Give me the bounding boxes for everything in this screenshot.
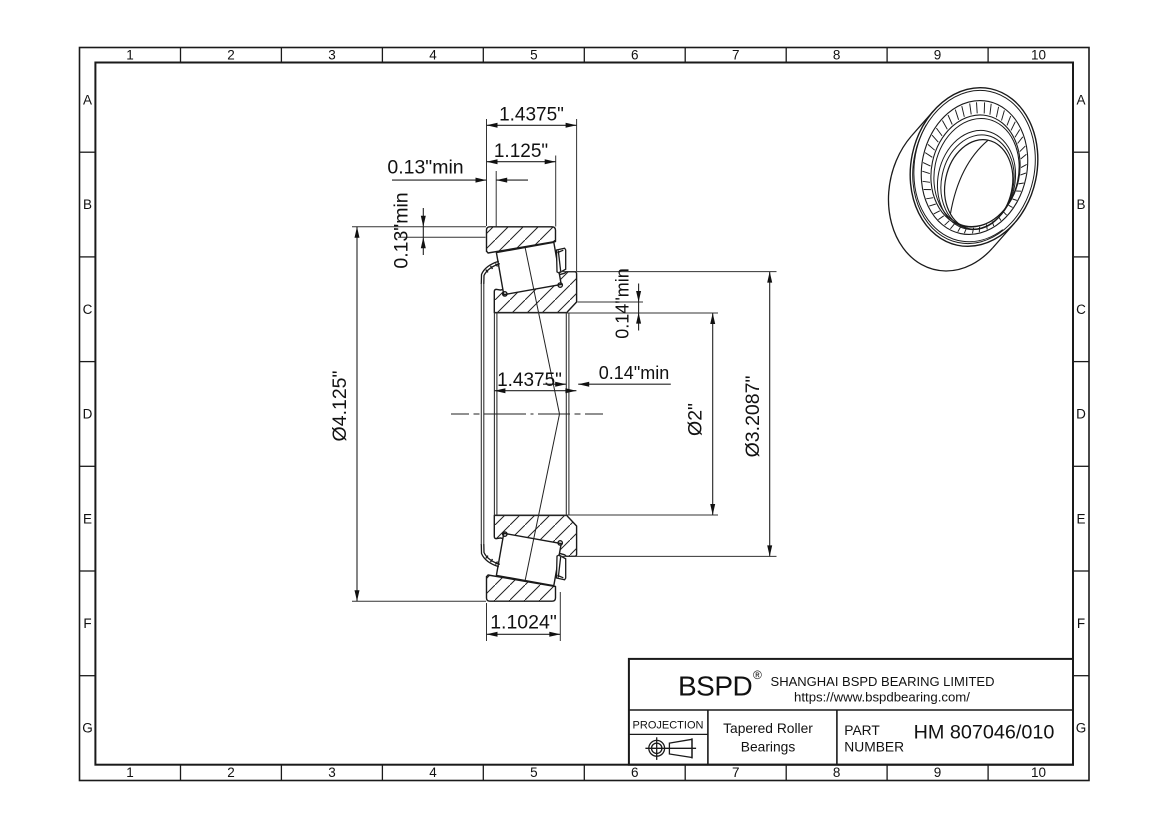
svg-text:10: 10	[1031, 48, 1046, 63]
svg-text:E: E	[1076, 511, 1085, 526]
svg-text:A: A	[83, 93, 92, 108]
svg-text:8: 8	[833, 765, 841, 780]
svg-text:G: G	[1076, 721, 1087, 736]
svg-text:E: E	[83, 511, 92, 526]
svg-text:NUMBER: NUMBER	[844, 740, 904, 755]
svg-text:0.13"min: 0.13"min	[387, 157, 463, 179]
svg-text:5: 5	[530, 48, 538, 63]
svg-text:4: 4	[429, 48, 437, 63]
svg-text:Tapered Roller: Tapered Roller	[723, 721, 813, 736]
svg-text:B: B	[83, 197, 92, 212]
svg-text:BSPD: BSPD	[678, 671, 752, 702]
svg-text:8: 8	[833, 48, 841, 63]
svg-text:1.4375": 1.4375"	[499, 105, 564, 126]
svg-text:0.13"min: 0.13"min	[391, 192, 413, 268]
svg-text:3: 3	[328, 48, 336, 63]
svg-text:0.14"min: 0.14"min	[599, 363, 669, 383]
svg-text:PART: PART	[844, 723, 880, 738]
svg-text:9: 9	[934, 765, 942, 780]
svg-text:B: B	[1076, 197, 1085, 212]
svg-text:10: 10	[1031, 765, 1046, 780]
svg-text:F: F	[83, 616, 91, 631]
svg-text:3: 3	[328, 765, 336, 780]
svg-text:9: 9	[934, 48, 942, 63]
svg-text:D: D	[83, 407, 93, 422]
svg-text:Ø3.2087": Ø3.2087"	[742, 376, 764, 458]
svg-text:1: 1	[126, 765, 134, 780]
svg-text:https://www.bspdbearing.com/: https://www.bspdbearing.com/	[794, 689, 970, 704]
svg-text:1.1024": 1.1024"	[490, 612, 557, 634]
svg-text:7: 7	[732, 765, 740, 780]
svg-text:Ø4.125": Ø4.125"	[329, 370, 351, 441]
svg-text:F: F	[1077, 616, 1085, 631]
svg-text:C: C	[1076, 302, 1086, 317]
svg-text:PROJECTION: PROJECTION	[633, 720, 704, 732]
svg-text:7: 7	[732, 48, 740, 63]
svg-text:®: ®	[753, 668, 762, 682]
svg-text:D: D	[1076, 407, 1086, 422]
svg-text:Bearings: Bearings	[741, 740, 796, 755]
svg-text:4: 4	[429, 765, 437, 780]
svg-text:1.4375": 1.4375"	[497, 370, 562, 391]
svg-text:0.14"min: 0.14"min	[613, 268, 633, 338]
svg-text:2: 2	[227, 48, 235, 63]
svg-text:1: 1	[126, 48, 134, 63]
svg-text:1.125": 1.125"	[494, 141, 548, 162]
svg-text:G: G	[82, 721, 93, 736]
svg-text:6: 6	[631, 765, 639, 780]
svg-text:HM 807046/010: HM 807046/010	[914, 721, 1055, 743]
svg-text:Ø2": Ø2"	[685, 403, 707, 436]
svg-text:5: 5	[530, 765, 538, 780]
svg-text:6: 6	[631, 48, 639, 63]
svg-text:SHANGHAI BSPD BEARING LIMITED: SHANGHAI BSPD BEARING LIMITED	[771, 674, 995, 689]
svg-text:C: C	[83, 302, 93, 317]
svg-text:2: 2	[227, 765, 235, 780]
svg-text:A: A	[1076, 93, 1085, 108]
